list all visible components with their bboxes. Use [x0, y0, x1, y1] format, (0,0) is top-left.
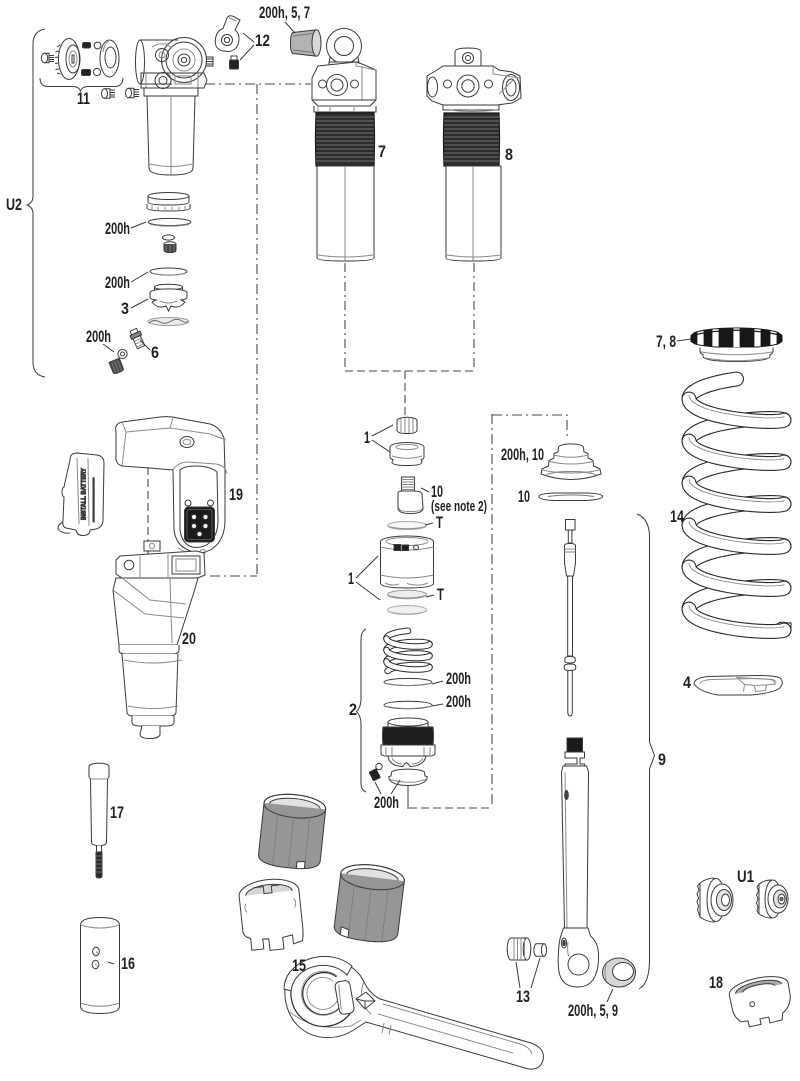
- svg-text:1: 1: [348, 569, 354, 588]
- svg-text:200h, 10: 200h, 10: [501, 445, 544, 464]
- svg-text:U1: U1: [737, 867, 754, 886]
- svg-text:200h: 200h: [374, 793, 399, 812]
- svg-text:T: T: [436, 513, 443, 532]
- svg-text:13: 13: [516, 987, 530, 1006]
- svg-text:15: 15: [292, 956, 306, 975]
- svg-text:6: 6: [151, 343, 159, 362]
- svg-text:11: 11: [77, 89, 90, 108]
- svg-text:14: 14: [670, 507, 684, 526]
- svg-text:INSTALL BATTERY: INSTALL BATTERY: [81, 467, 88, 520]
- svg-text:200h: 200h: [105, 273, 130, 292]
- svg-text:8: 8: [505, 145, 513, 164]
- svg-text:19: 19: [229, 485, 243, 504]
- svg-text:U2: U2: [6, 195, 22, 214]
- svg-text:200h: 200h: [446, 669, 471, 688]
- svg-text:200h: 200h: [446, 692, 471, 711]
- svg-text:200h, 5, 9: 200h, 5, 9: [568, 1001, 618, 1020]
- svg-text:20: 20: [182, 629, 196, 648]
- svg-text:7, 8: 7, 8: [656, 332, 676, 351]
- svg-text:9: 9: [658, 750, 666, 769]
- svg-text:17: 17: [110, 803, 124, 822]
- svg-text:T: T: [437, 585, 444, 604]
- svg-text:10: 10: [518, 487, 530, 506]
- svg-text:200h: 200h: [86, 327, 111, 346]
- svg-text:18: 18: [709, 973, 723, 992]
- svg-text:1: 1: [364, 428, 370, 447]
- svg-text:200h: 200h: [105, 219, 130, 238]
- svg-text:▪▪▪▪▪▪▪▪▪▪▪▪: ▪▪▪▪▪▪▪▪▪▪▪▪: [91, 477, 96, 522]
- svg-text:12: 12: [255, 31, 270, 50]
- svg-text:2: 2: [349, 700, 357, 719]
- svg-text:16: 16: [121, 954, 135, 973]
- svg-text:200h, 5, 7: 200h, 5, 7: [259, 3, 310, 22]
- svg-text:7: 7: [378, 142, 386, 161]
- svg-text:3: 3: [121, 299, 129, 318]
- svg-text:4: 4: [683, 673, 691, 692]
